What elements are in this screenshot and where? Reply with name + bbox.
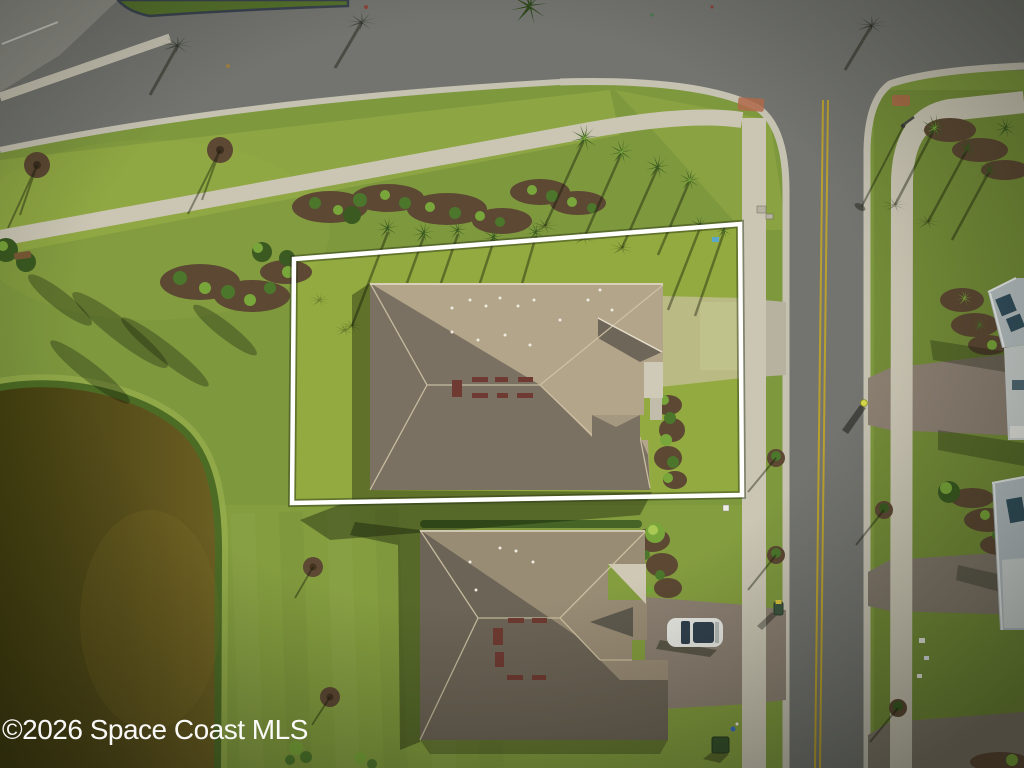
flag-marker-blue [731, 727, 736, 732]
utility-pad [766, 214, 773, 219]
curb-ramp-pad-right [892, 95, 910, 106]
curb-ramp-pad-left [738, 97, 765, 112]
houseB-porch [1002, 558, 1024, 628]
road-mark [364, 5, 368, 9]
car-rear-window [715, 622, 719, 643]
utility-pad [757, 206, 766, 213]
car-roof-glass [693, 622, 714, 643]
front-walk [650, 398, 662, 420]
aerial-scene [0, 0, 1024, 768]
pond [0, 387, 220, 768]
aerial-lot-photo: ©2026 Space Coast MLS [0, 0, 1024, 768]
road-mark [226, 64, 230, 68]
blue-marker [712, 237, 719, 242]
lot-corner-marker [723, 505, 729, 511]
road-mark [710, 5, 713, 8]
front-porch [644, 362, 663, 398]
mls-watermark: ©2026 Space Coast MLS [2, 714, 308, 746]
road-mark [650, 13, 653, 16]
car-windshield [681, 621, 690, 644]
